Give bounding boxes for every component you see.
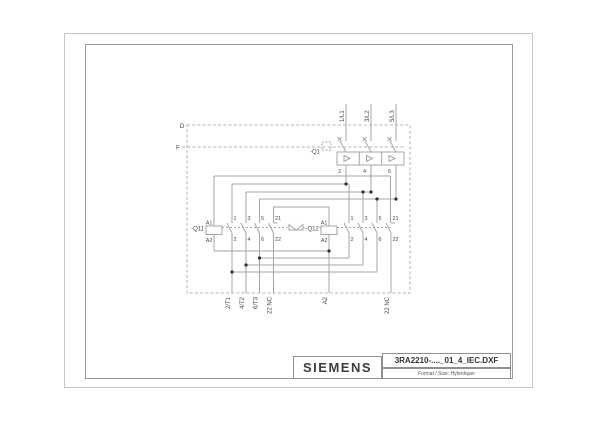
q12-coil	[321, 226, 337, 235]
q12-n2: 2	[351, 237, 354, 243]
supply-lines	[346, 104, 396, 141]
exit-label-2T1: 2/T1	[226, 296, 232, 309]
q11-coil	[206, 226, 222, 235]
supply-label-5L3: 5/L3	[390, 110, 396, 122]
q1-pole2-cross-icon	[363, 137, 367, 141]
boundary-label-f: F	[176, 145, 180, 152]
q12-n6: 6	[379, 237, 382, 243]
q1-release3-icon	[389, 156, 395, 162]
q12-label: -Q12	[306, 227, 320, 233]
enclosure-boundary	[182, 125, 410, 293]
q12-n4: 4	[365, 237, 368, 243]
q1-pole1-cross-icon	[338, 137, 342, 141]
q11-n6: 6	[261, 237, 264, 243]
q12-n5: 5	[379, 216, 382, 222]
exit-label-4T2: 4/T2	[240, 296, 246, 309]
upper-wiring	[214, 176, 396, 226]
q1-terminal-6: 6	[388, 169, 391, 175]
exit-label-22NC-left: 22 NC	[268, 296, 274, 314]
q1-release1-icon	[344, 156, 350, 162]
q11-n5: 5	[261, 216, 264, 222]
q11-n1: 1	[234, 216, 237, 222]
q12-n1: 1	[351, 216, 354, 222]
q11-n21: 21	[275, 216, 281, 222]
q11-a2-label: A2	[206, 238, 213, 244]
q1-label: -Q1	[310, 150, 321, 156]
q12-n3: 3	[365, 216, 368, 222]
supply-label-3L2: 3/L2	[365, 110, 371, 122]
q11-n3: 3	[248, 216, 251, 222]
exit-label-6T3: 6/T3	[254, 296, 260, 309]
q1-breaker	[322, 137, 404, 199]
drawing-filename: 3RA2210-...._01_4_IEC.DXF	[382, 353, 511, 368]
q12-a2-label: A2	[321, 238, 328, 244]
format-info-text: Format / Size: Hybridquer	[418, 371, 475, 377]
drawing-page: D F 1/L1 3/L2 5/L3 -Q1 2 4 6	[0, 0, 600, 424]
supply-label-1L1: 1/L1	[340, 110, 346, 122]
q11-n4: 4	[248, 237, 251, 243]
q11-n2: 2	[234, 237, 237, 243]
exit-label-22NC-right: 22 NC	[385, 296, 391, 314]
q12-a1-label: A1	[321, 221, 328, 227]
q1-terminal-4: 4	[363, 169, 366, 175]
q11-label: -Q11	[191, 227, 205, 233]
q11-a1-label: A1	[206, 221, 213, 227]
q11-contactor	[206, 223, 288, 237]
q12-n22: 22	[393, 237, 399, 243]
q1-release2-icon	[367, 156, 373, 162]
q12-n21: 21	[393, 216, 399, 222]
q11-n22: 22	[275, 237, 281, 243]
q1-terminal-2: 2	[338, 169, 341, 175]
q1-pole3-cross-icon	[388, 137, 392, 141]
q1-operator-icon	[322, 142, 331, 150]
q12-contactor	[321, 223, 395, 237]
lower-wiring	[214, 235, 391, 294]
boundary-label-d: D	[180, 123, 185, 130]
siemens-logo-text: SIEMENS	[303, 360, 372, 375]
exit-label-A2: A2	[323, 296, 329, 304]
siemens-logo: SIEMENS	[293, 356, 382, 379]
format-info: Format / Size: Hybridquer	[382, 368, 511, 379]
drawing-filename-text: 3RA2210-...._01_4_IEC.DXF	[395, 356, 499, 365]
